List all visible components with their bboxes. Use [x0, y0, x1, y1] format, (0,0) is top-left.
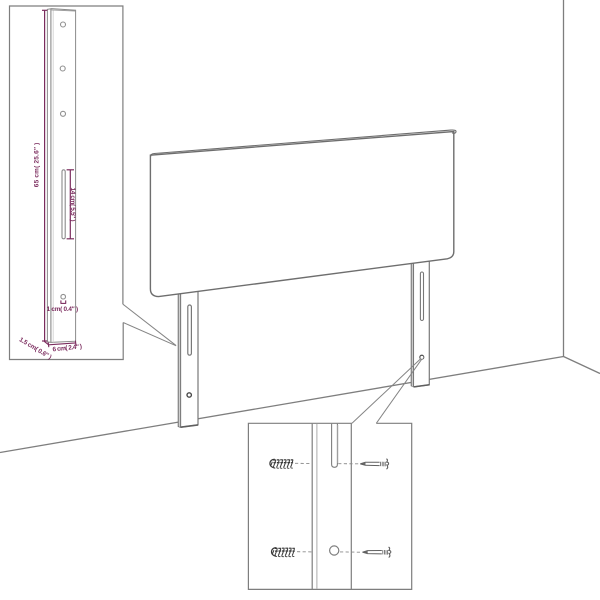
- svg-text:1 cm( 0.4″ ): 1 cm( 0.4″ ): [47, 306, 79, 313]
- svg-text:14 cm( 5.5″ ): 14 cm( 5.5″ ): [69, 188, 76, 222]
- svg-text:65 cm( 25.6″ ): 65 cm( 25.6″ ): [34, 143, 41, 188]
- svg-text:6 cm( 2.4″ ): 6 cm( 2.4″ ): [52, 343, 82, 353]
